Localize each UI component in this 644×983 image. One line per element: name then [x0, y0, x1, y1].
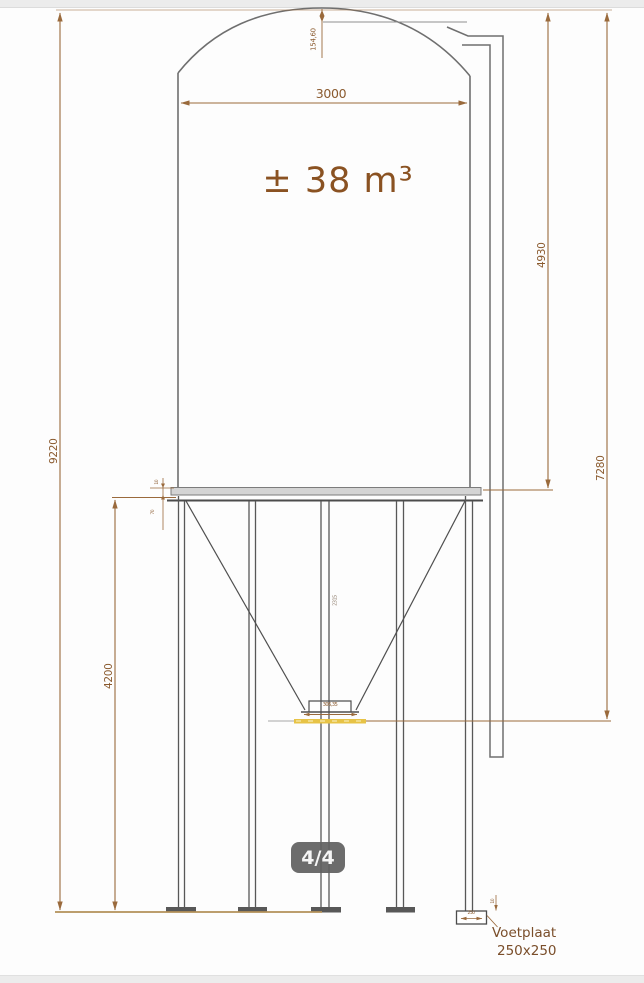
dim-outlet-width: 306,35	[310, 703, 350, 708]
volume-label: ± 38 m³	[238, 164, 438, 199]
dim-overall-height: 9220	[49, 429, 60, 473]
footplate-callout-label: Voetplaat	[492, 927, 556, 941]
dim-footplate-width: 250	[463, 912, 479, 917]
dim-tank-diameter: 3000	[296, 88, 366, 101]
drawing-image[interactable]: 154,60 3000 ± 38 m³ 4930 7280 9220 4200 …	[0, 0, 644, 983]
dim-tank-height: 4930	[537, 233, 548, 277]
silo-line-art	[0, 0, 644, 983]
dome-dim-arrows	[161, 10, 325, 500]
tank-bottom-ring	[171, 488, 481, 496]
dim-dome-height: 154,60	[311, 18, 318, 62]
tank-shell	[178, 8, 470, 488]
dim-rim-offset-top: 10	[156, 476, 161, 488]
dim-leg-height: 4200	[104, 654, 115, 698]
outlet-highlight	[294, 719, 366, 724]
dim-rim-offset-bottom: 70	[152, 506, 157, 518]
footplate-callout-size: 250x250	[497, 945, 557, 959]
dim-silo-outlet-height: 7280	[596, 446, 607, 490]
fill-pipe	[447, 27, 503, 757]
dim-footplate-thickness: 10	[492, 895, 497, 907]
dim-cone-height: 2315	[334, 588, 339, 614]
cone-hopper	[186, 501, 465, 712]
dimension-lines	[56, 9, 612, 927]
page-indicator-badge: 4/4	[291, 842, 345, 873]
